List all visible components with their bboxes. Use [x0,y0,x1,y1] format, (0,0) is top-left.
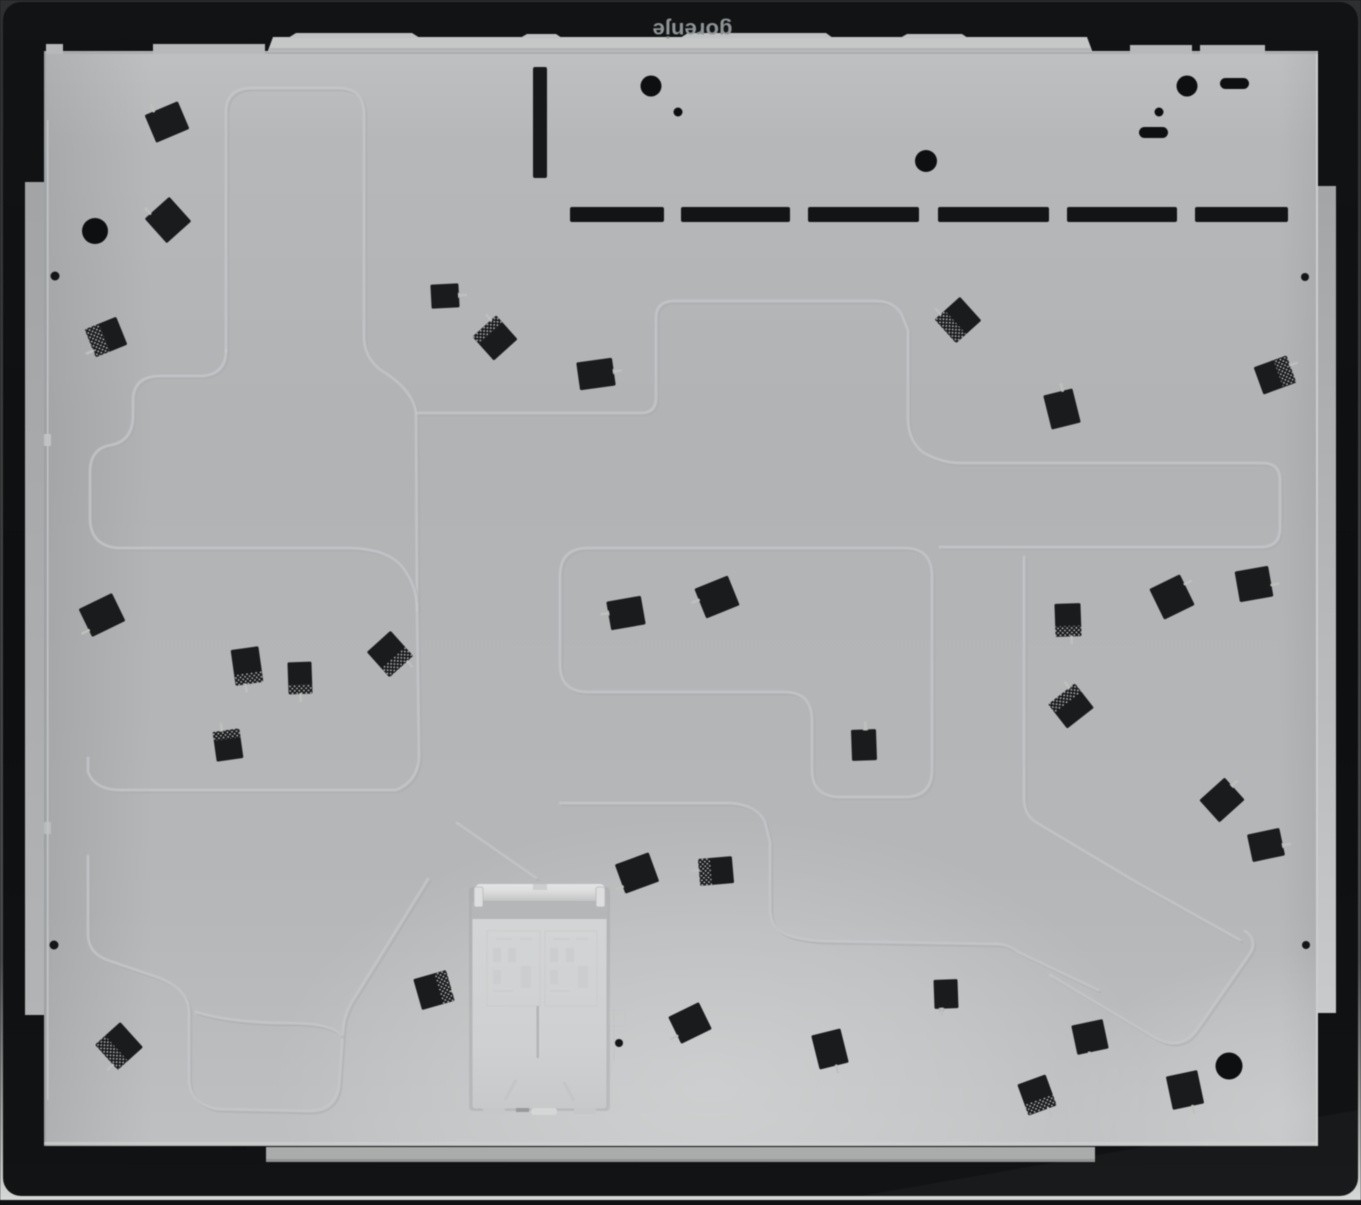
svg-text:gorenje: gorenje [653,18,733,41]
